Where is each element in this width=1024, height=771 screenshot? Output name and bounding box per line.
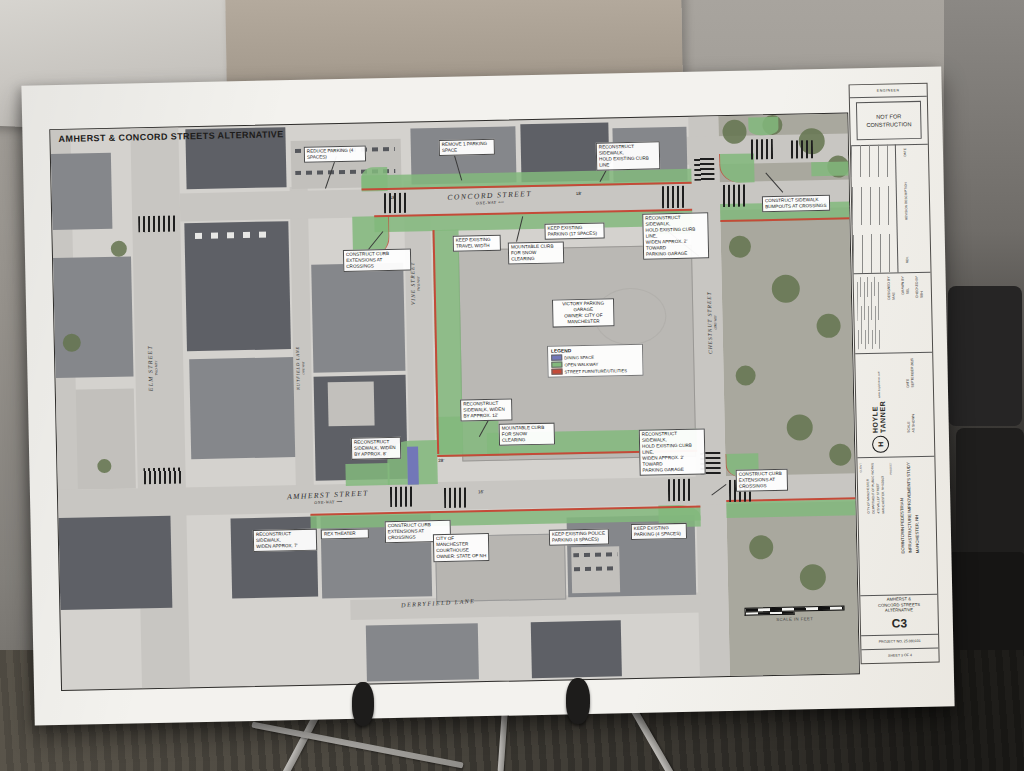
crosswalk bbox=[444, 487, 468, 507]
label-elm-street: ELM STREET TWO-WAY bbox=[146, 322, 159, 414]
legend-label: DINING SPACE bbox=[564, 354, 594, 360]
callout-keep-travel-width: KEEP EXISTING TRAVEL WIDTH bbox=[453, 235, 501, 252]
project-label: PROJECT bbox=[889, 463, 892, 475]
legend-swatch-furniture bbox=[551, 368, 562, 374]
disclaimer-fine-print bbox=[857, 277, 883, 349]
dimension-label: 18' bbox=[576, 191, 582, 196]
crosswalk bbox=[723, 185, 747, 207]
dining-space-area bbox=[407, 446, 419, 484]
legend-label: OPEN WALKWAY bbox=[564, 361, 598, 367]
building bbox=[366, 623, 479, 681]
revision-rev-header: REV. bbox=[905, 256, 909, 263]
callout-keep-parking-4: KEEP EXISTING PARKING (4 SPACES) bbox=[631, 523, 687, 540]
stacked-objects bbox=[956, 428, 1024, 553]
building bbox=[51, 153, 113, 230]
callout-mountable-curb-upper: MOUNTABLE CURB FOR SNOW CLEARING bbox=[508, 241, 564, 264]
callout-courthouse: CITY OF MANCHESTER COURTHOUSE OWNER: STA… bbox=[433, 533, 490, 562]
client-label: CLIENT bbox=[859, 463, 862, 472]
plan-sheet: REDUCE PARKING (4 SPACES) REMOVE 1 PARKI… bbox=[21, 66, 954, 725]
crosswalk bbox=[791, 140, 813, 158]
building bbox=[184, 221, 291, 351]
crosswalk bbox=[694, 156, 714, 180]
street-direction: TWO-WAY bbox=[154, 361, 158, 376]
callout-curb-extensions-east: CONSTRUCT CURB EXTENSIONS AT CROSSINGS bbox=[736, 469, 788, 492]
green-walkway bbox=[726, 499, 856, 518]
callout-rex-theater: REX THEATER bbox=[321, 529, 369, 540]
sheet-title-row: AMHERST & CONCORD STREETS ALTERNATIVE C3 bbox=[860, 594, 938, 637]
legend: LEGEND DINING SPACE OPEN WALKWAY STREET … bbox=[547, 344, 644, 378]
stacked-objects bbox=[948, 286, 1022, 426]
checked-by: CHECKED BY SBH bbox=[915, 276, 925, 298]
callout-widen-8: RECONSTRUCT SIDEWALK, WIDEN BY APPROX. 8… bbox=[351, 437, 401, 460]
legend-swatch-walkway bbox=[551, 361, 562, 367]
courtyard bbox=[328, 381, 375, 426]
callout-reduce-parking: REDUCE PARKING (4 SPACES) bbox=[304, 146, 366, 163]
street-direction: TWO-WAY bbox=[416, 276, 420, 291]
board-clip bbox=[566, 678, 590, 724]
designed-by: DESIGNED BY MAE bbox=[887, 276, 897, 299]
not-for-construction-stamp: NOT FOR CONSTRUCTION bbox=[856, 101, 922, 140]
callout-reconstruct-hold-curb: RECONSTRUCT SIDEWALK, HOLD EXISTING CURB… bbox=[596, 141, 661, 170]
green-bumpout bbox=[748, 117, 778, 136]
green-walkway bbox=[345, 463, 389, 486]
sheet-number: C3 bbox=[861, 616, 938, 632]
scale-bar-segments bbox=[745, 611, 795, 616]
label-chestnut-street: CHESTNUT STREET ONE-WAY bbox=[706, 274, 719, 370]
callout-remove-parking: REMOVE 1 PARKING SPACE bbox=[439, 139, 495, 156]
stamp-row: NOT FOR CONSTRUCTION bbox=[850, 96, 928, 147]
label-nutfield-lane: NUTFIELD LANE ONE-WAY bbox=[294, 323, 306, 413]
green-walkway bbox=[811, 161, 849, 176]
legend-swatch-dining bbox=[551, 354, 562, 360]
sheet-date: DATE SEPTEMBER 2025 bbox=[905, 358, 915, 388]
callout-mountable-curb-lower: MOUNTABLE CURB FOR SNOW CLEARING bbox=[499, 423, 555, 446]
street-name: ELM STREET bbox=[147, 345, 154, 391]
callout-keep-parking-17: KEEP EXISTING PARKING (17 SPACES) bbox=[544, 223, 604, 240]
firm-name: HOYLE TANNER bbox=[871, 400, 887, 433]
callout-police-parking: KEEP EXISTING POLICE PARKING (4 SPACES) bbox=[549, 528, 609, 545]
building bbox=[58, 516, 172, 610]
building bbox=[53, 256, 133, 378]
street-name: NUTFIELD LANE bbox=[295, 346, 301, 390]
crosswalk bbox=[751, 139, 773, 159]
credits-row: DESIGNED BY MAE DRAWN BY SEL CHECKED BY … bbox=[854, 272, 933, 355]
callout-curb-extensions-nw: CONSTRUCT CURB EXTENSIONS AT CROSSINGS bbox=[343, 249, 411, 272]
hoyle-tanner-logo-icon: H bbox=[871, 436, 888, 453]
tree bbox=[111, 241, 127, 257]
crosswalk bbox=[384, 193, 408, 213]
legend-item-furniture: STREET FURNITURE/UTILITIES bbox=[551, 367, 639, 375]
dimension-label: 28' bbox=[438, 458, 444, 463]
crosswalk bbox=[662, 186, 686, 208]
drawn-by: DRAWN BY SEL bbox=[901, 276, 911, 294]
board-clip bbox=[352, 682, 374, 726]
crosswalk bbox=[668, 479, 692, 501]
building bbox=[189, 357, 295, 459]
firm-website: www.hoyletanner.com bbox=[877, 370, 882, 397]
client-name: CITY OF MANCHESTER DEPARTMENT OF PUBLIC … bbox=[865, 463, 886, 514]
crosswalk bbox=[143, 467, 181, 484]
legend-label: STREET FURNITURE/UTILITIES bbox=[564, 368, 627, 374]
callout-widen-12: RECONSTRUCT SIDEWALK, WIDEN BY APPROX. 1… bbox=[460, 398, 512, 421]
firm-identity: www.hoyletanner.com HOYLE TANNER H bbox=[859, 356, 899, 453]
photo-of-plan-board: REDUCE PARKING (4 SPACES) REMOVE 1 PARKI… bbox=[0, 0, 1024, 771]
building bbox=[311, 263, 405, 373]
map-frame: REDUCE PARKING (4 SPACES) REMOVE 1 PARKI… bbox=[49, 112, 860, 691]
project-name: DOWNTOWN PEDESTRIAN INFRASTRUCTURE IMPRO… bbox=[897, 462, 921, 554]
client-project-row: CLIENT CITY OF MANCHESTER DEPARTMENT OF … bbox=[857, 456, 937, 597]
building bbox=[531, 620, 622, 678]
firm-row: www.hoyletanner.com HOYLE TANNER H DATE … bbox=[855, 352, 934, 459]
callout-widen-toward-garage-lower: RECONSTRUCT SIDEWALK, HOLD EXISTING CURB… bbox=[639, 428, 706, 475]
dimension-label: 18' bbox=[390, 195, 396, 200]
revision-description-header: REVISION DESCRIPTION bbox=[904, 182, 909, 220]
revision-table: DATE REVISION DESCRIPTION REV. bbox=[851, 144, 931, 275]
sheet-title: AMHERST & CONCORD STREETS ALTERNATIVE bbox=[860, 596, 937, 615]
callout-widen-7: RECONSTRUCT SIDEWALK, WIDEN APPROX. 7' bbox=[253, 529, 317, 552]
title-block: ENGINEER NOT FOR CONSTRUCTION DATE REVIS… bbox=[849, 83, 940, 665]
street-direction: ONE-WAY bbox=[713, 315, 717, 329]
callout-widen-toward-garage-upper: RECONSTRUCT SIDEWALK, HOLD EXISTING CURB… bbox=[642, 212, 709, 259]
street-direction: ONE-WAY bbox=[301, 362, 305, 375]
scale-bar: SCALE IN FEET bbox=[744, 606, 844, 623]
callout-sidewalk-bumpouts: CONSTRUCT SIDEWALK BUMPOUTS AT CROSSINGS bbox=[762, 195, 830, 212]
sheet-scale: SCALE AS SHOWN bbox=[906, 414, 916, 433]
street-name: CHESTNUT STREET bbox=[706, 291, 713, 354]
revision-rows bbox=[851, 144, 899, 273]
dimension-label: 16' bbox=[478, 489, 484, 494]
crosswalk bbox=[138, 215, 176, 232]
revision-date-header: DATE bbox=[903, 148, 907, 156]
sheet-count: SHEET 3 OF 4 bbox=[861, 648, 938, 663]
label-victory-garage: VICTORY PARKING GARAGE OWNER: CITY OF MA… bbox=[552, 298, 615, 327]
